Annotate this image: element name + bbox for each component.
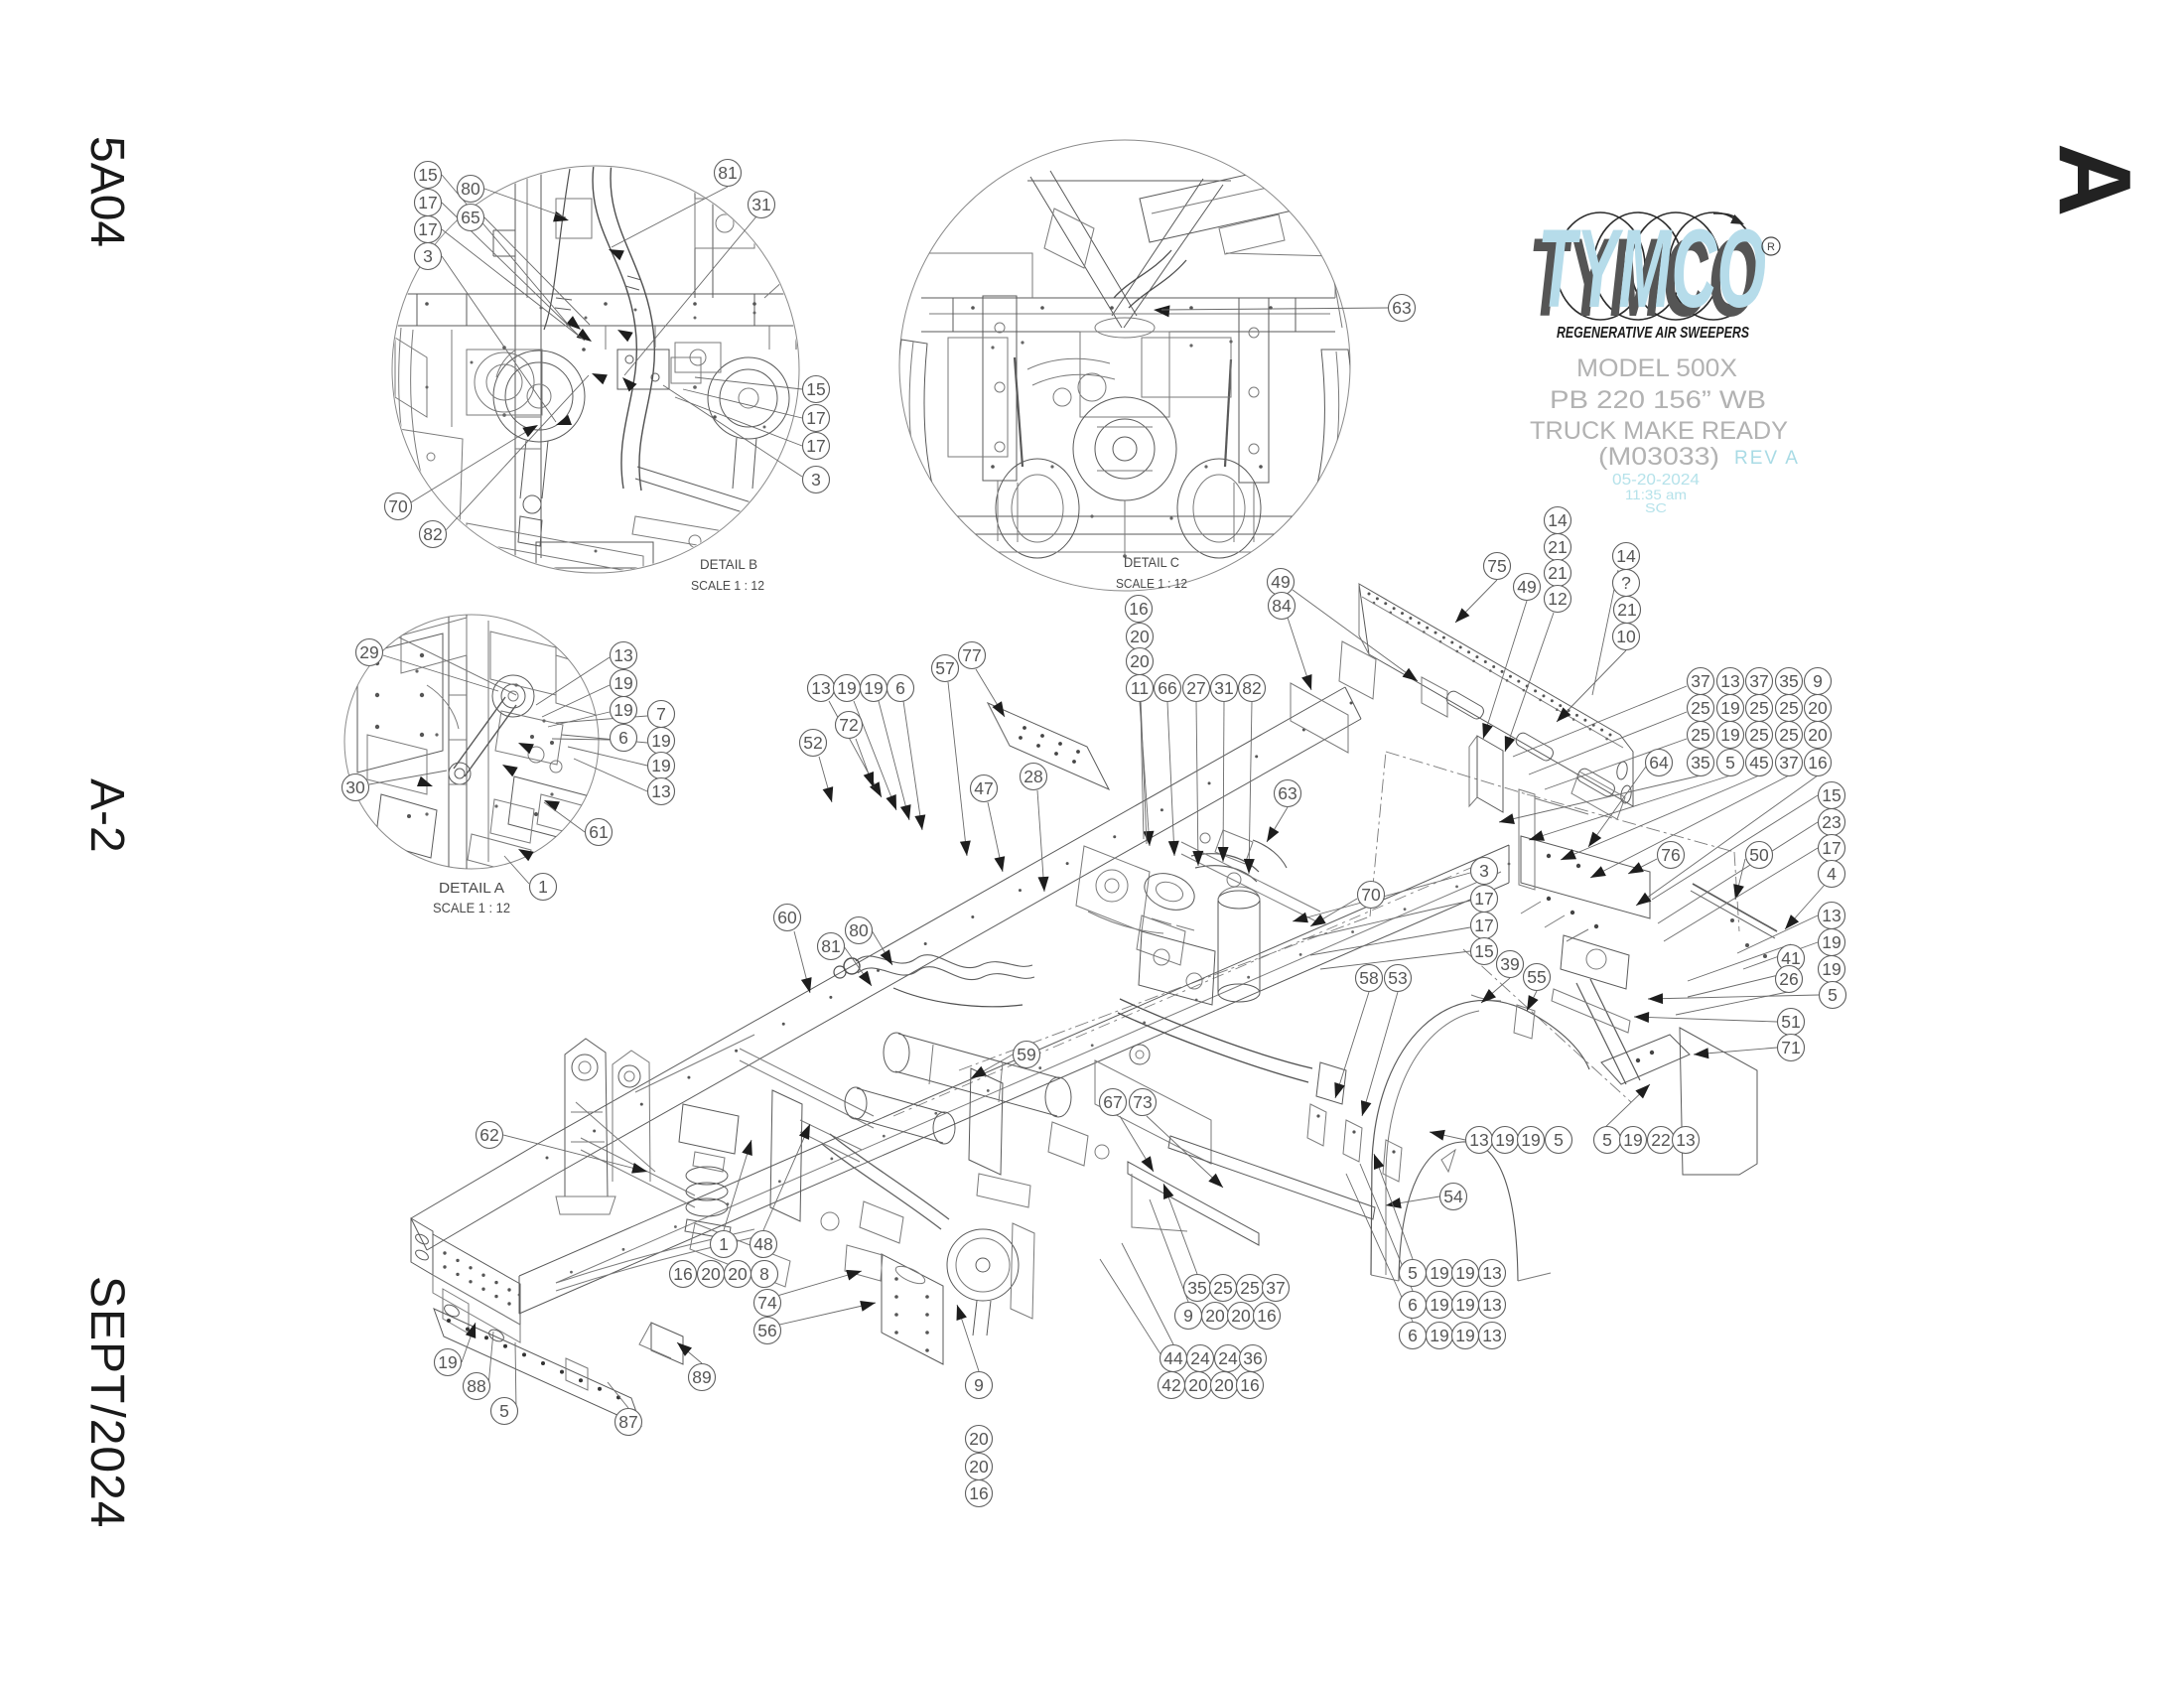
svg-text:19: 19 [864, 678, 883, 698]
svg-text:17: 17 [1474, 889, 1493, 909]
svg-text:16: 16 [1808, 753, 1827, 773]
svg-text:20: 20 [1130, 627, 1150, 646]
svg-text:19: 19 [1822, 932, 1841, 952]
svg-text:37: 37 [1691, 671, 1709, 691]
svg-text:SCALE 1 : 12: SCALE 1 : 12 [433, 900, 510, 915]
svg-text:1: 1 [538, 877, 548, 897]
svg-text:51: 51 [1781, 1012, 1800, 1032]
svg-text:9: 9 [974, 1375, 984, 1395]
svg-text:15: 15 [418, 165, 437, 185]
svg-text:19: 19 [1623, 1130, 1642, 1150]
svg-text:52: 52 [803, 733, 822, 753]
svg-text:19: 19 [1521, 1130, 1540, 1150]
svg-text:12: 12 [1548, 589, 1567, 609]
svg-text:16: 16 [1129, 599, 1148, 619]
svg-text:7: 7 [656, 704, 666, 724]
svg-text:9: 9 [1183, 1306, 1193, 1326]
svg-text:17: 17 [418, 219, 437, 239]
svg-text:37: 37 [1779, 753, 1798, 773]
svg-text:20: 20 [969, 1457, 989, 1477]
svg-text:48: 48 [753, 1234, 772, 1254]
svg-text:R: R [1767, 241, 1775, 253]
svg-text:47: 47 [974, 778, 993, 798]
svg-text:59: 59 [1017, 1045, 1035, 1064]
svg-text:44: 44 [1163, 1348, 1183, 1368]
svg-text:20: 20 [1808, 725, 1828, 745]
svg-text:35: 35 [1187, 1278, 1206, 1298]
svg-text:19: 19 [1720, 698, 1739, 718]
svg-text:19: 19 [1455, 1263, 1474, 1283]
svg-text:6: 6 [1408, 1295, 1418, 1315]
svg-text:76: 76 [1661, 845, 1680, 865]
svg-text:54: 54 [1443, 1187, 1463, 1206]
svg-text:88: 88 [467, 1376, 485, 1396]
svg-text:25: 25 [1691, 725, 1709, 745]
svg-text:19: 19 [1720, 725, 1739, 745]
svg-text:37: 37 [1749, 671, 1768, 691]
svg-text:73: 73 [1133, 1092, 1152, 1112]
svg-text:27: 27 [1186, 678, 1205, 698]
svg-text:21: 21 [1548, 563, 1567, 583]
svg-text:80: 80 [849, 920, 869, 940]
svg-text:17: 17 [1474, 915, 1493, 935]
svg-text:13: 13 [1676, 1130, 1695, 1150]
svg-text:5: 5 [1602, 1130, 1612, 1150]
svg-text:70: 70 [388, 496, 408, 516]
svg-text:13: 13 [1482, 1326, 1501, 1345]
svg-text:19: 19 [1430, 1326, 1448, 1345]
svg-text:5: 5 [1828, 985, 1838, 1005]
svg-text:45: 45 [1749, 753, 1768, 773]
svg-text:81: 81 [718, 163, 737, 183]
svg-text:DETAIL B: DETAIL B [700, 556, 757, 572]
svg-text:28: 28 [1024, 767, 1042, 786]
svg-text:42: 42 [1161, 1375, 1180, 1395]
svg-text:3: 3 [423, 246, 433, 266]
svg-text:49: 49 [1271, 572, 1290, 592]
svg-text:22: 22 [1651, 1130, 1670, 1150]
svg-text:8: 8 [759, 1264, 769, 1284]
svg-text:15: 15 [806, 379, 825, 399]
svg-text:70: 70 [1361, 885, 1381, 905]
svg-text:16: 16 [1240, 1375, 1259, 1395]
svg-text:17: 17 [806, 436, 825, 456]
svg-text:13: 13 [1482, 1263, 1501, 1283]
svg-text:25: 25 [1779, 698, 1798, 718]
svg-text:11: 11 [1131, 678, 1149, 698]
svg-text:58: 58 [1359, 968, 1378, 988]
svg-text:5: 5 [1554, 1130, 1564, 1150]
svg-text:25: 25 [1749, 698, 1768, 718]
svg-text:1: 1 [719, 1234, 729, 1254]
svg-text:24: 24 [1190, 1348, 1210, 1368]
svg-text:DETAIL A: DETAIL A [439, 880, 504, 897]
svg-text:17: 17 [418, 193, 437, 212]
svg-text:20: 20 [1205, 1306, 1225, 1326]
svg-text:PB 220 156” WB: PB 220 156” WB [1550, 386, 1766, 414]
svg-text:82: 82 [423, 524, 442, 544]
svg-text:13: 13 [811, 678, 830, 698]
svg-text:25: 25 [1240, 1278, 1259, 1298]
svg-text:66: 66 [1158, 678, 1176, 698]
svg-text:64: 64 [1649, 753, 1669, 773]
svg-text:21: 21 [1617, 600, 1636, 620]
svg-text:29: 29 [359, 642, 378, 662]
svg-text:14: 14 [1548, 510, 1568, 530]
svg-text:39: 39 [1500, 954, 1519, 974]
svg-text:9: 9 [1813, 671, 1823, 691]
svg-text:20: 20 [1231, 1306, 1251, 1326]
svg-text:60: 60 [777, 908, 797, 927]
svg-text:19: 19 [651, 731, 670, 751]
svg-text:31: 31 [751, 195, 770, 214]
svg-text:56: 56 [757, 1321, 776, 1340]
svg-text:74: 74 [757, 1293, 777, 1313]
svg-text:19: 19 [614, 700, 632, 720]
svg-text:17: 17 [1822, 838, 1841, 858]
svg-text:89: 89 [692, 1367, 711, 1387]
svg-text:REGENERATIVE AIR SWEEPERS: REGENERATIVE AIR SWEEPERS [1557, 325, 1750, 342]
svg-text:20: 20 [1188, 1375, 1208, 1395]
svg-text:23: 23 [1822, 812, 1841, 832]
svg-text:53: 53 [1388, 968, 1407, 988]
svg-text:19: 19 [614, 673, 632, 693]
svg-text:DETAIL C: DETAIL C [1124, 554, 1179, 570]
svg-text:41: 41 [1781, 948, 1800, 968]
svg-text:4: 4 [1827, 864, 1837, 884]
svg-text:82: 82 [1242, 678, 1261, 698]
svg-text:72: 72 [839, 715, 858, 735]
svg-text:80: 80 [461, 179, 480, 199]
svg-text:50: 50 [1749, 845, 1769, 865]
svg-text:81: 81 [821, 936, 840, 956]
svg-text:19: 19 [438, 1352, 457, 1372]
svg-text:26: 26 [1779, 969, 1798, 989]
svg-text:SCALE 1 : 12: SCALE 1 : 12 [691, 578, 764, 593]
svg-text:19: 19 [837, 678, 856, 698]
svg-text:19: 19 [1455, 1295, 1474, 1315]
svg-text:35: 35 [1779, 671, 1798, 691]
svg-text:13: 13 [1469, 1130, 1488, 1150]
svg-text:49: 49 [1517, 577, 1536, 597]
svg-text:55: 55 [1527, 967, 1546, 987]
svg-text:57: 57 [935, 658, 954, 678]
svg-text:5: 5 [1725, 753, 1735, 773]
svg-text:62: 62 [479, 1125, 498, 1145]
svg-text:87: 87 [618, 1412, 637, 1432]
svg-text:A: A [2038, 143, 2152, 216]
svg-text:20: 20 [1130, 651, 1150, 671]
svg-text:A-2: A-2 [80, 778, 133, 853]
svg-text:75: 75 [1487, 556, 1506, 576]
svg-text:84: 84 [1272, 596, 1292, 616]
svg-text:35: 35 [1691, 753, 1709, 773]
svg-text:65: 65 [461, 208, 479, 227]
svg-text:10: 10 [1616, 627, 1636, 646]
svg-text:20: 20 [728, 1264, 748, 1284]
svg-text:25: 25 [1213, 1278, 1232, 1298]
svg-text:31: 31 [1214, 678, 1233, 698]
svg-text:77: 77 [962, 645, 981, 665]
svg-text:20: 20 [969, 1429, 989, 1449]
svg-text:37: 37 [1266, 1278, 1285, 1298]
svg-text:5A04: 5A04 [80, 136, 133, 247]
svg-text:30: 30 [345, 777, 365, 797]
svg-text:15: 15 [1474, 941, 1493, 961]
svg-text:24: 24 [1218, 1348, 1238, 1368]
svg-text:5: 5 [1408, 1263, 1418, 1283]
svg-text:19: 19 [1430, 1263, 1448, 1283]
svg-text:71: 71 [1781, 1038, 1800, 1057]
svg-text:36: 36 [1243, 1348, 1262, 1368]
svg-text:67: 67 [1103, 1092, 1122, 1112]
svg-text:19: 19 [1430, 1295, 1448, 1315]
svg-text:20: 20 [1808, 698, 1828, 718]
svg-text:3: 3 [1479, 861, 1489, 881]
svg-text:25: 25 [1691, 698, 1709, 718]
svg-text:(M03033): (M03033) [1598, 443, 1719, 471]
svg-text:25: 25 [1779, 725, 1798, 745]
svg-text:19: 19 [1822, 959, 1841, 979]
svg-text:21: 21 [1548, 537, 1567, 557]
svg-text:13: 13 [1720, 671, 1739, 691]
svg-text:20: 20 [701, 1264, 721, 1284]
svg-text:SC: SC [1645, 500, 1667, 515]
svg-text:13: 13 [1482, 1295, 1501, 1315]
svg-text:13: 13 [651, 781, 670, 801]
svg-text:SCALE 1 : 12: SCALE 1 : 12 [1116, 576, 1187, 591]
svg-text:16: 16 [969, 1483, 988, 1503]
svg-text:6: 6 [1408, 1326, 1418, 1345]
svg-text:16: 16 [1257, 1306, 1276, 1326]
svg-text:63: 63 [1278, 783, 1297, 803]
svg-text:19: 19 [1495, 1130, 1514, 1150]
svg-text:25: 25 [1749, 725, 1768, 745]
svg-text:13: 13 [614, 645, 632, 665]
svg-text:5: 5 [499, 1401, 509, 1421]
svg-text:17: 17 [806, 408, 825, 428]
svg-text:6: 6 [895, 678, 905, 698]
svg-text:20: 20 [1214, 1375, 1234, 1395]
svg-text:TRUCK MAKE READY: TRUCK MAKE READY [1530, 417, 1788, 445]
svg-text:19: 19 [1455, 1326, 1474, 1345]
svg-text:?: ? [1621, 573, 1631, 593]
svg-text:63: 63 [1392, 298, 1411, 318]
svg-text:TYMCO: TYMCO [1538, 207, 1766, 331]
svg-text:16: 16 [673, 1264, 692, 1284]
svg-text:14: 14 [1616, 546, 1636, 566]
svg-text:13: 13 [1822, 906, 1841, 925]
svg-text:61: 61 [589, 822, 608, 842]
svg-text:3: 3 [811, 470, 821, 490]
svg-text:6: 6 [618, 728, 628, 748]
svg-text:SEPT/2024: SEPT/2024 [80, 1276, 133, 1528]
svg-text:19: 19 [651, 756, 670, 775]
svg-text:MODEL 500X: MODEL 500X [1576, 354, 1737, 382]
svg-text:15: 15 [1822, 785, 1841, 805]
svg-text:REV A: REV A [1734, 448, 1800, 469]
